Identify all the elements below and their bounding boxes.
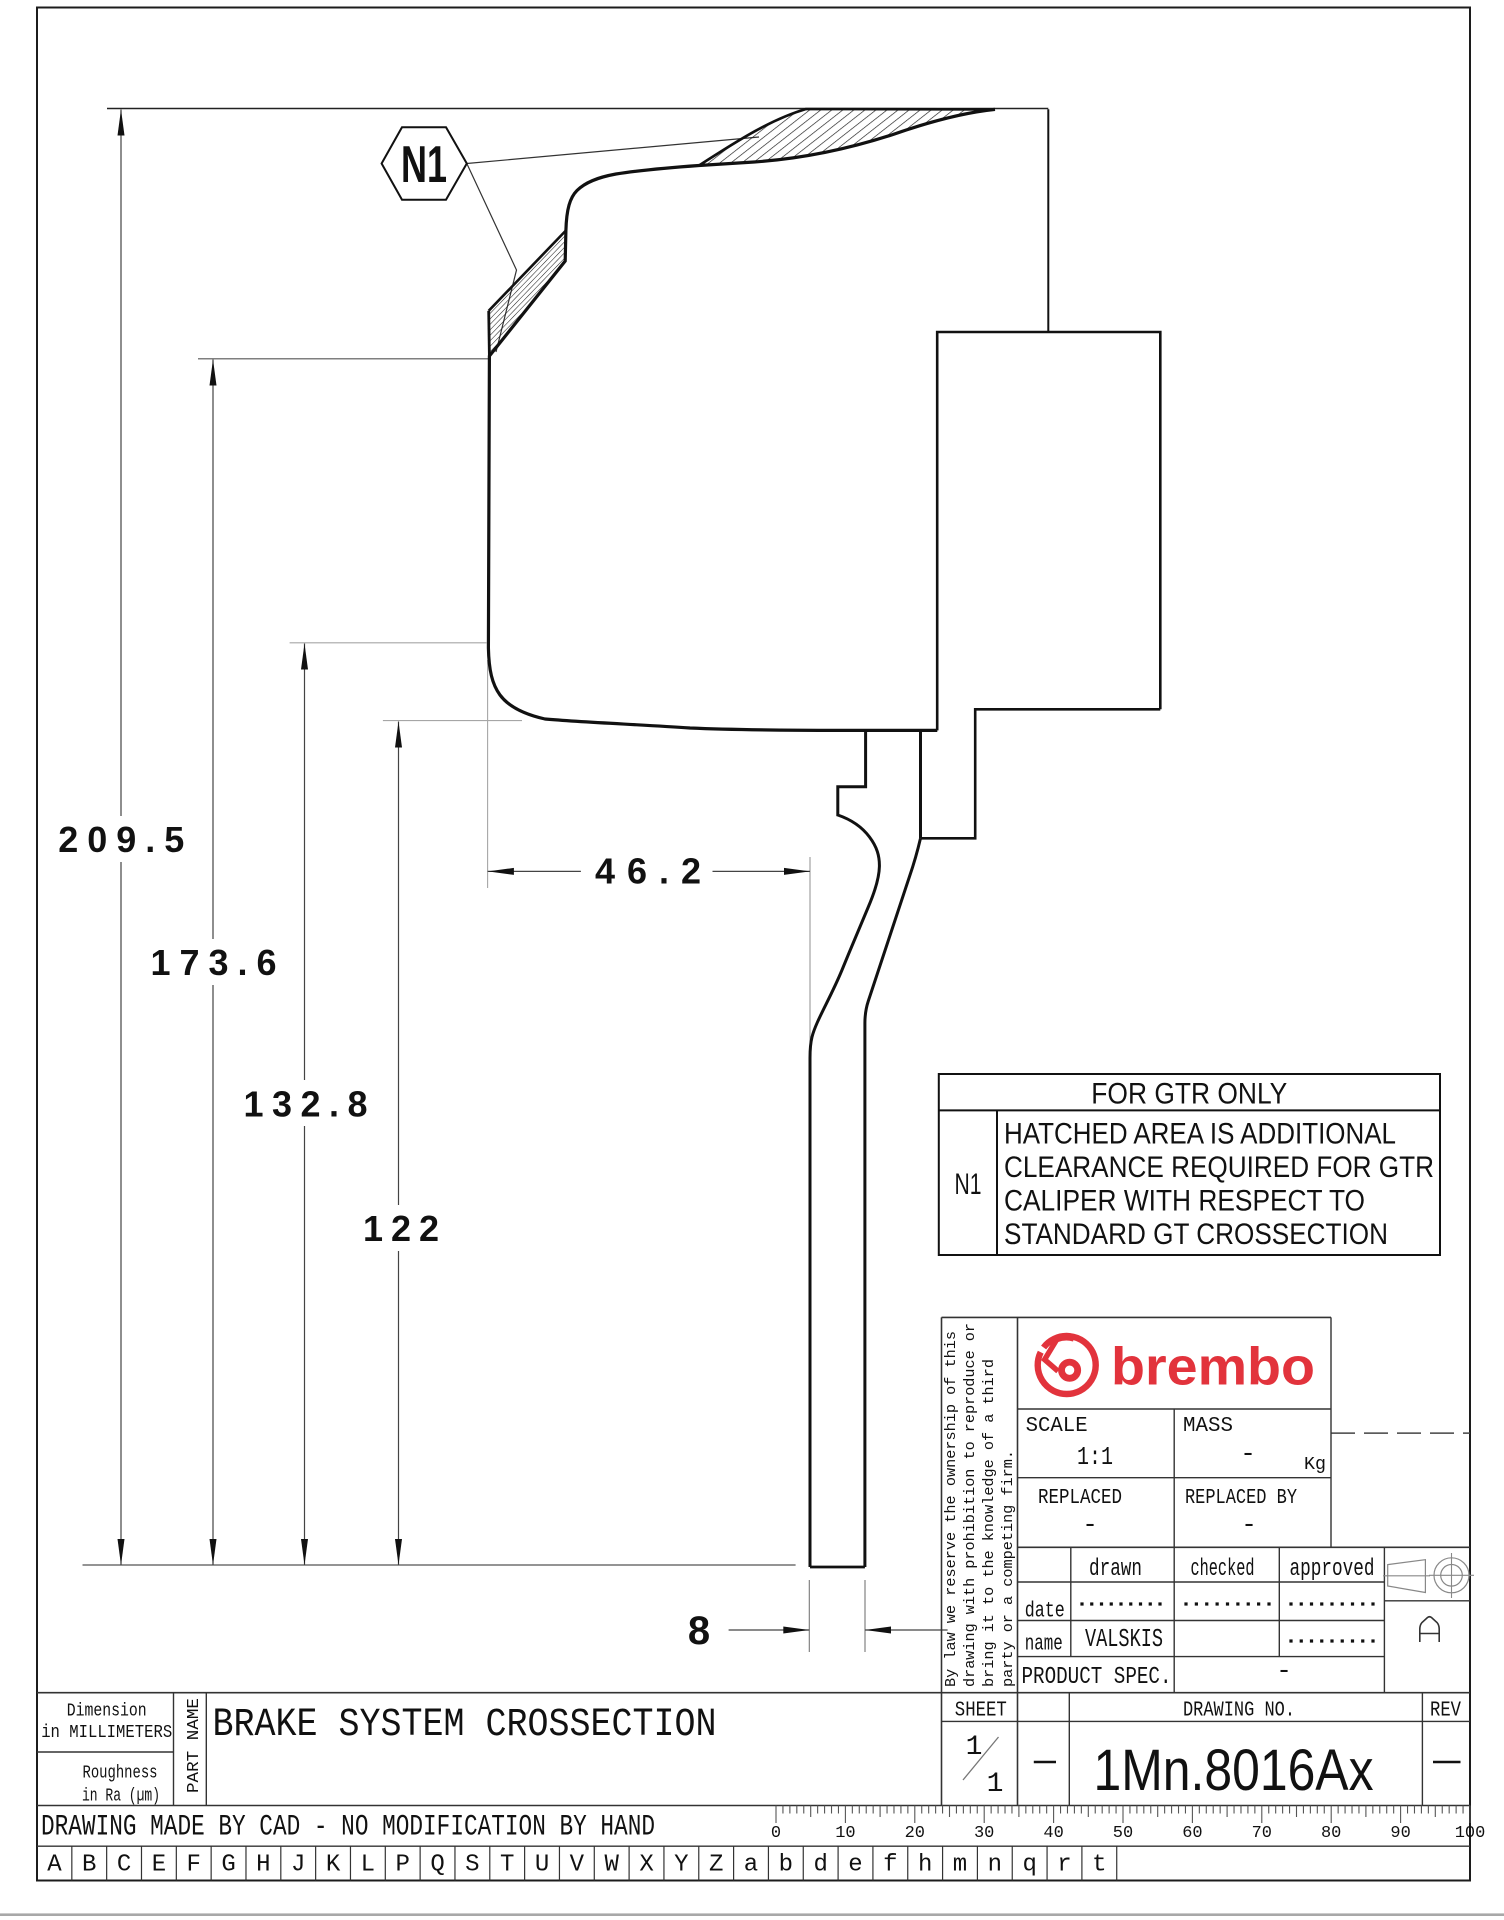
svg-text:SHEET: SHEET — [955, 1700, 1007, 1723]
svg-text:checked: checked — [1191, 1556, 1255, 1583]
svg-text:80: 80 — [1321, 1824, 1341, 1843]
svg-text:U: U — [535, 1852, 549, 1879]
svg-text:By law we reserve the ownershi: By law we reserve the ownership of this — [944, 1331, 960, 1687]
svg-text:Q: Q — [430, 1852, 444, 1879]
svg-text:T: T — [500, 1852, 514, 1879]
svg-text:SCALE: SCALE — [1026, 1415, 1088, 1438]
svg-text:20: 20 — [905, 1824, 925, 1843]
svg-text:E: E — [152, 1852, 166, 1879]
svg-text:30: 30 — [974, 1824, 994, 1843]
svg-text:q: q — [1022, 1852, 1036, 1879]
svg-text:a: a — [744, 1852, 758, 1879]
svg-text:J: J — [291, 1852, 305, 1879]
svg-text:h: h — [918, 1852, 932, 1879]
svg-text:drawing with prohibition to re: drawing with prohibition to reproduce or — [963, 1323, 979, 1687]
svg-text:G: G — [221, 1852, 235, 1879]
svg-text:in Ra (µm): in Ra (µm) — [82, 1787, 160, 1807]
svg-text:r: r — [1057, 1852, 1071, 1879]
svg-text:V: V — [570, 1852, 585, 1879]
svg-text:60: 60 — [1182, 1824, 1202, 1843]
svg-text:10: 10 — [835, 1824, 855, 1843]
svg-text:date: date — [1025, 1599, 1065, 1624]
svg-text:209.5: 209.5 — [58, 819, 184, 860]
svg-text:40: 40 — [1043, 1824, 1063, 1843]
svg-text:8: 8 — [688, 1609, 710, 1653]
svg-text:S: S — [465, 1852, 479, 1879]
svg-text:C: C — [117, 1852, 131, 1879]
svg-text:B: B — [82, 1852, 96, 1879]
svg-text:Z: Z — [709, 1852, 723, 1879]
svg-text:in MILLIMETERS: in MILLIMETERS — [41, 1723, 172, 1743]
svg-text:W: W — [604, 1852, 619, 1879]
svg-text:50: 50 — [1113, 1824, 1133, 1843]
svg-text:HATCHED AREA IS ADDITIONAL: HATCHED AREA IS ADDITIONAL — [1004, 1118, 1396, 1151]
svg-text:VALSKIS: VALSKIS — [1085, 1624, 1163, 1654]
svg-text:1:1: 1:1 — [1077, 1442, 1113, 1472]
svg-text:DRAWING NO.: DRAWING NO. — [1183, 1700, 1295, 1723]
svg-text:approved: approved — [1290, 1556, 1375, 1583]
svg-text:Roughness: Roughness — [83, 1764, 158, 1784]
svg-text:drawn: drawn — [1089, 1556, 1142, 1583]
svg-text:Dimension: Dimension — [67, 1702, 147, 1722]
svg-text:1: 1 — [987, 1769, 1004, 1800]
svg-text:party or a competing firm.: party or a competing firm. — [1001, 1450, 1017, 1687]
svg-text:F: F — [187, 1852, 201, 1879]
svg-text:Kg: Kg — [1304, 1455, 1326, 1475]
svg-text:PART NAME: PART NAME — [185, 1698, 204, 1793]
svg-text:m: m — [953, 1852, 967, 1879]
svg-text:P: P — [396, 1852, 410, 1879]
svg-text:REV: REV — [1430, 1700, 1461, 1723]
svg-text:e: e — [848, 1852, 862, 1879]
svg-text:b: b — [779, 1852, 793, 1879]
svg-text:PRODUCT SPEC.: PRODUCT SPEC. — [1022, 1664, 1172, 1691]
svg-text:0: 0 — [771, 1824, 781, 1843]
svg-text:X: X — [639, 1852, 653, 1879]
svg-text:-: - — [1276, 1656, 1292, 1686]
svg-text:N1: N1 — [401, 136, 447, 194]
svg-text:bring it to the knowledge of a: bring it to the knowledge of a third — [982, 1359, 998, 1687]
svg-text:REPLACED: REPLACED — [1038, 1487, 1122, 1510]
svg-text:-: - — [1082, 1510, 1098, 1540]
svg-text:Y: Y — [674, 1852, 688, 1879]
svg-text:K: K — [326, 1852, 341, 1879]
svg-text:MASS: MASS — [1183, 1415, 1233, 1438]
svg-text:FOR GTR ONLY: FOR GTR ONLY — [1091, 1078, 1287, 1111]
svg-text:REPLACED BY: REPLACED BY — [1185, 1487, 1297, 1510]
svg-text:90: 90 — [1390, 1824, 1410, 1843]
svg-text:BRAKE SYSTEM CROSSECTION: BRAKE SYSTEM CROSSECTION — [213, 1703, 717, 1748]
svg-text:100: 100 — [1455, 1824, 1486, 1843]
svg-text:-: - — [1240, 1439, 1256, 1469]
svg-text:CLEARANCE REQUIRED FOR GTR: CLEARANCE REQUIRED FOR GTR — [1004, 1151, 1434, 1184]
svg-text:H: H — [256, 1852, 270, 1879]
svg-text:N1: N1 — [955, 1168, 982, 1201]
svg-text:1Mn.8016Ax: 1Mn.8016Ax — [1094, 1738, 1374, 1803]
svg-text:DRAWING MADE BY CAD - NO MODIF: DRAWING MADE BY CAD - NO MODIFICATION BY… — [41, 1811, 655, 1845]
svg-text:70: 70 — [1252, 1824, 1272, 1843]
svg-text:132.8: 132.8 — [244, 1084, 368, 1125]
svg-text:173.6: 173.6 — [151, 942, 277, 983]
svg-text:t: t — [1092, 1852, 1106, 1879]
svg-text:d: d — [813, 1852, 827, 1879]
svg-text:name: name — [1025, 1632, 1063, 1657]
svg-text:122: 122 — [363, 1208, 439, 1249]
svg-text:L: L — [361, 1852, 375, 1879]
svg-text:CALIPER WITH RESPECT TO: CALIPER WITH RESPECT TO — [1004, 1185, 1365, 1218]
svg-text:n: n — [988, 1852, 1002, 1879]
svg-text:brembo: brembo — [1111, 1338, 1315, 1397]
svg-text:f: f — [883, 1852, 897, 1879]
svg-text:-: - — [1241, 1510, 1257, 1540]
svg-text:STANDARD GT CROSSECTION: STANDARD GT CROSSECTION — [1004, 1218, 1388, 1251]
svg-text:1: 1 — [966, 1732, 983, 1763]
svg-text:A: A — [47, 1852, 62, 1879]
